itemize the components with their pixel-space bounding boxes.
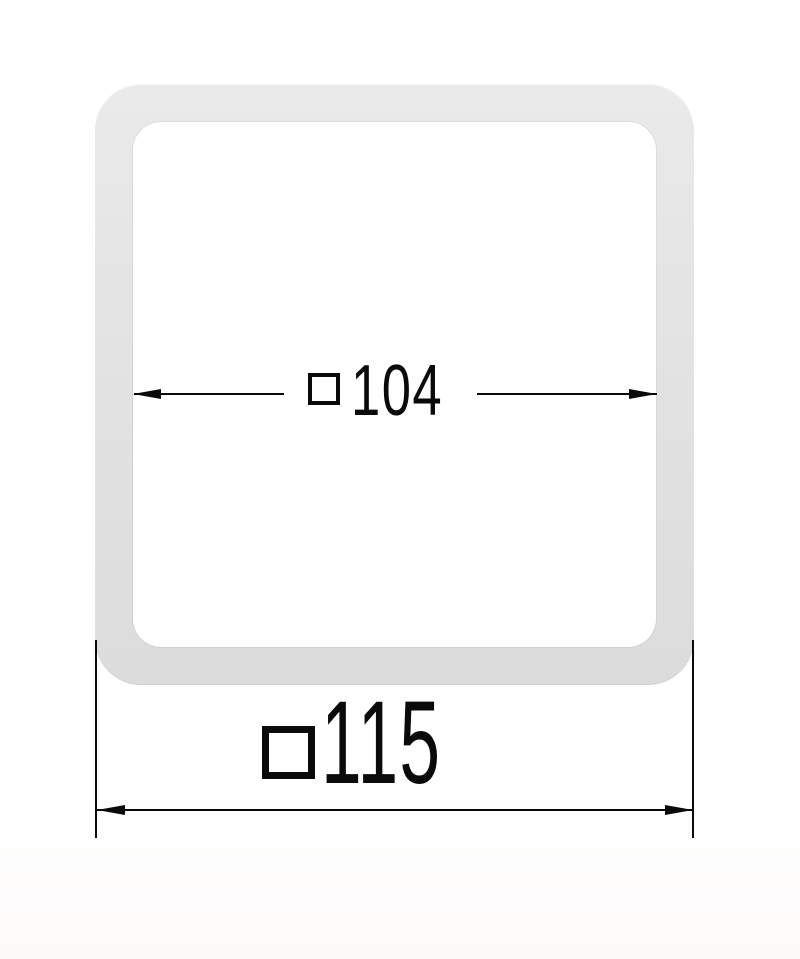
dimension-drawing: 104 115	[0, 0, 800, 959]
square-section-symbol-icon	[262, 726, 315, 779]
arrowhead-right-icon	[665, 805, 693, 815]
outer-dimension-value: 115	[321, 684, 441, 802]
square-section-symbol-icon	[308, 373, 340, 405]
arrowhead-left-icon	[133, 389, 161, 399]
arrowhead-left-icon	[97, 805, 125, 815]
arrowhead-right-icon	[629, 389, 657, 399]
inner-dimension-value: 104	[351, 355, 443, 427]
outer-dimension-line	[97, 809, 693, 811]
